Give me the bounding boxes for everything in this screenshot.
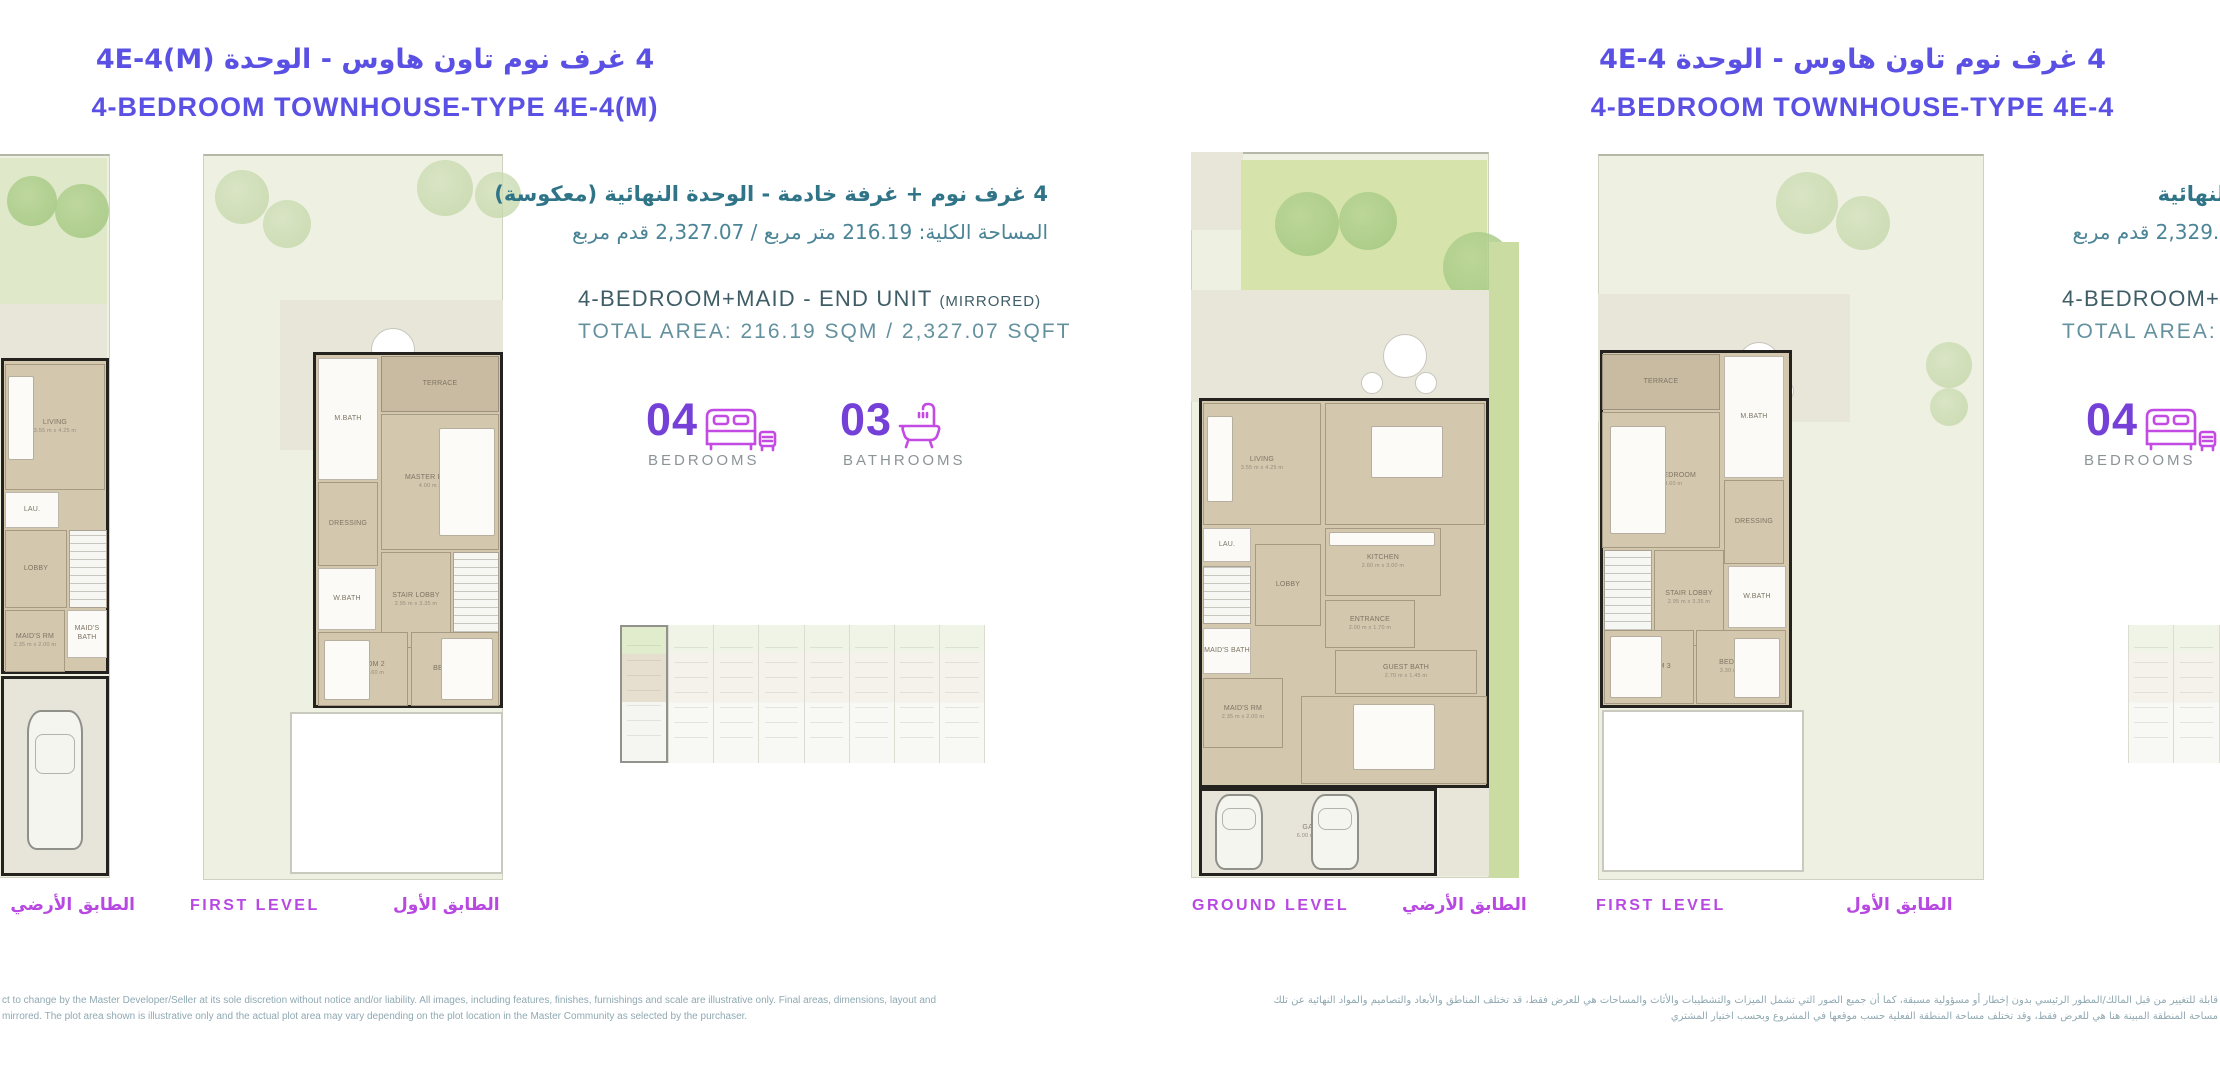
keyplan-unit <box>713 625 758 763</box>
room-entrance: ENTRANCE2.00 m x 1.70 m <box>1325 600 1415 648</box>
keyplan-unit <box>2173 625 2218 763</box>
left-ground-level-label-arabic: الطابق الأرضي <box>20 895 135 915</box>
left-bedrooms-label: BEDROOMS <box>648 452 760 469</box>
bed <box>1353 704 1435 770</box>
right-total-area-english-fragment: TOTAL AREA: 2 <box>2062 320 2220 344</box>
room-lobby: LOBBY <box>5 530 67 608</box>
tree-icon <box>1339 192 1397 250</box>
front-path <box>1191 152 1243 230</box>
keyplan-unit <box>804 625 849 763</box>
right-bedrooms-count: 04 <box>2086 394 2138 446</box>
floor-plan-left-ground-cut: LIVING3.55 m x 4.25 mLAU.LOBBYMAID'S BAT… <box>0 150 118 882</box>
patio-table <box>1383 334 1427 378</box>
car-icon <box>1215 794 1263 870</box>
open-below <box>290 712 503 874</box>
room-guest-bath: GUEST BATH2.70 m x 1.45 m <box>1335 650 1477 694</box>
room-w-bath: W.BATH <box>1728 566 1786 628</box>
keyplan-unit <box>758 625 803 763</box>
left-title-english: 4-BEDROOM TOWNHOUSE-TYPE 4E-4(M) <box>55 92 695 123</box>
room-m-bath: M.BATH <box>318 358 378 480</box>
floor-plan-right-ground-level: LIVING3.55 m x 4.25 mDINING3.50 m x 2.95… <box>1185 148 1525 882</box>
keyplan-unit <box>939 625 985 763</box>
car-icon <box>1311 794 1359 870</box>
room-terrace: TERRACE <box>1602 354 1720 410</box>
left-unit-type-english: 4-BEDROOM+MAID - END UNIT (MIRRORED) <box>578 286 1041 312</box>
room-lau: LAU. <box>5 492 59 528</box>
left-total-area-english: TOTAL AREA: 216.19 SQM / 2,327.07 SQFT <box>578 320 1071 344</box>
right-disclaimer-line2: مساحة المنطقة المبينة هنا هي للعرض فقط، … <box>1185 1009 2218 1025</box>
left-first-level-label-english: FIRST LEVEL <box>190 897 320 915</box>
tree-icon <box>1776 172 1838 234</box>
patio <box>1191 290 1489 402</box>
room-lau: LAU. <box>1203 528 1251 562</box>
kitchen-counter <box>1329 532 1435 546</box>
bed <box>1734 638 1780 698</box>
site-key-plan <box>2128 625 2220 763</box>
car-icon <box>27 710 83 850</box>
bed-icon <box>702 402 778 459</box>
left-bedrooms-count: 04 <box>646 394 698 446</box>
room-maid-s-rm: MAID'S RM2.35 m x 2.00 m <box>5 610 65 672</box>
right-title-english: 4-BEDROOM TOWNHOUSE-TYPE 4E-4 <box>1545 92 2160 123</box>
right-first-level-label-english: FIRST LEVEL <box>1596 897 1726 915</box>
right-ground-level-label-arabic: الطابق الأرضي <box>1402 895 1527 915</box>
right-unit-type-english-fragment: 4-BEDROOM+M <box>2062 286 2220 312</box>
right-ground-level-label-english: GROUND LEVEL <box>1192 897 1349 915</box>
room-w-bath: W.BATH <box>318 568 376 630</box>
left-unit-type-suffix: (MIRRORED) <box>939 293 1041 310</box>
bathtub-icon <box>896 400 946 457</box>
keyplan-unit <box>668 625 713 763</box>
patio <box>0 304 107 358</box>
keyplan-unit-highlighted <box>620 625 668 763</box>
bed <box>324 640 370 700</box>
room-lobby: LOBBY <box>1255 544 1321 626</box>
tree-icon <box>1926 342 1972 388</box>
brochure-page: 4 غرف نوم تاون هاوس - الوحدة 4E-4(M) 4-B… <box>0 0 2220 1080</box>
patio-chair <box>1415 372 1437 394</box>
right-disclaimer: قابلة للتغيير من قبل المالك/المطور الرئي… <box>1185 993 2218 1025</box>
tree-icon <box>1930 388 1968 426</box>
tree-icon <box>215 170 269 224</box>
bed <box>441 638 493 700</box>
right-total-area-arabic-fragment: 2,329.9 قدم مربع <box>2050 220 2220 244</box>
left-disclaimer-line1: ct to change by the Master Developer/Sel… <box>2 993 1047 1009</box>
tree-icon <box>417 160 473 216</box>
patio-chair <box>1361 372 1383 394</box>
keyplan-unit <box>849 625 894 763</box>
tree-icon <box>7 176 57 226</box>
dining-table <box>1371 426 1443 478</box>
open-below <box>1602 710 1804 872</box>
side-garden-strip <box>1489 242 1519 878</box>
right-first-level-label-arabic: الطابق الأول <box>1846 895 1953 915</box>
room-m-bath: M.BATH <box>1724 356 1784 478</box>
right-title-arabic: 4 غرف نوم تاون هاوس - الوحدة 4E-4 <box>1545 44 2160 75</box>
stairs <box>1203 566 1251 624</box>
left-title-arabic: 4 غرف نوم تاون هاوس - الوحدة 4E-4(M) <box>55 44 695 75</box>
floor-plan-left-first-level: M.BATHTERRACEMASTER BEDROOM4.00 m x 3.60… <box>185 148 520 882</box>
room-maid-s-bath: MAID'S BATH <box>67 610 107 658</box>
room-dressing: DRESSING <box>1724 480 1784 564</box>
bed <box>1610 426 1666 534</box>
left-disclaimer: ct to change by the Master Developer/Sel… <box>2 993 1047 1025</box>
right-unit-type-arabic-fragment: لنهائية <box>2150 182 2220 206</box>
right-bedrooms-label: BEDROOMS <box>2084 452 2196 469</box>
left-bathrooms-count: 03 <box>840 394 892 446</box>
bed <box>439 428 495 536</box>
room-terrace: TERRACE <box>381 356 499 412</box>
keyplan-unit <box>894 625 939 763</box>
room-dressing: DRESSING <box>318 482 378 566</box>
bed-icon <box>2142 402 2218 459</box>
tree-icon <box>1836 196 1890 250</box>
driveway <box>1439 788 1489 876</box>
left-total-area-arabic: المساحة الكلية: 216.19 متر مربع / 2,327.… <box>575 220 1048 244</box>
sofa <box>1207 416 1233 502</box>
stairs <box>69 530 107 608</box>
left-unit-type-arabic: 4 غرف نوم + غرفة خادمة - الوحدة النهائية… <box>575 182 1048 206</box>
tree-icon <box>1275 192 1339 256</box>
left-first-level-label-arabic: الطابق الأول <box>393 895 500 915</box>
room-maid-s-rm: MAID'S RM2.35 m x 2.00 m <box>1203 678 1283 748</box>
keyplan-unit <box>2128 625 2173 763</box>
right-disclaimer-line1: قابلة للتغيير من قبل المالك/المطور الرئي… <box>1185 993 2218 1009</box>
tree-icon <box>55 184 109 238</box>
left-disclaimer-line2: mirrored. The plot area shown is illustr… <box>2 1009 1047 1025</box>
left-unit-type-main: 4-BEDROOM+MAID - END UNIT <box>578 286 932 311</box>
floor-plan-right-first-level: TERRACEMASTER BEDROOM4.00 m x 3.60 mM.BA… <box>1590 148 1990 882</box>
sofa <box>8 376 34 460</box>
left-bathrooms-label: BATHROOMS <box>843 452 966 469</box>
site-key-plan <box>620 625 985 763</box>
room-maid-s-bath: MAID'S BATH <box>1203 628 1251 674</box>
tree-icon <box>263 200 311 248</box>
bed <box>1610 636 1662 698</box>
